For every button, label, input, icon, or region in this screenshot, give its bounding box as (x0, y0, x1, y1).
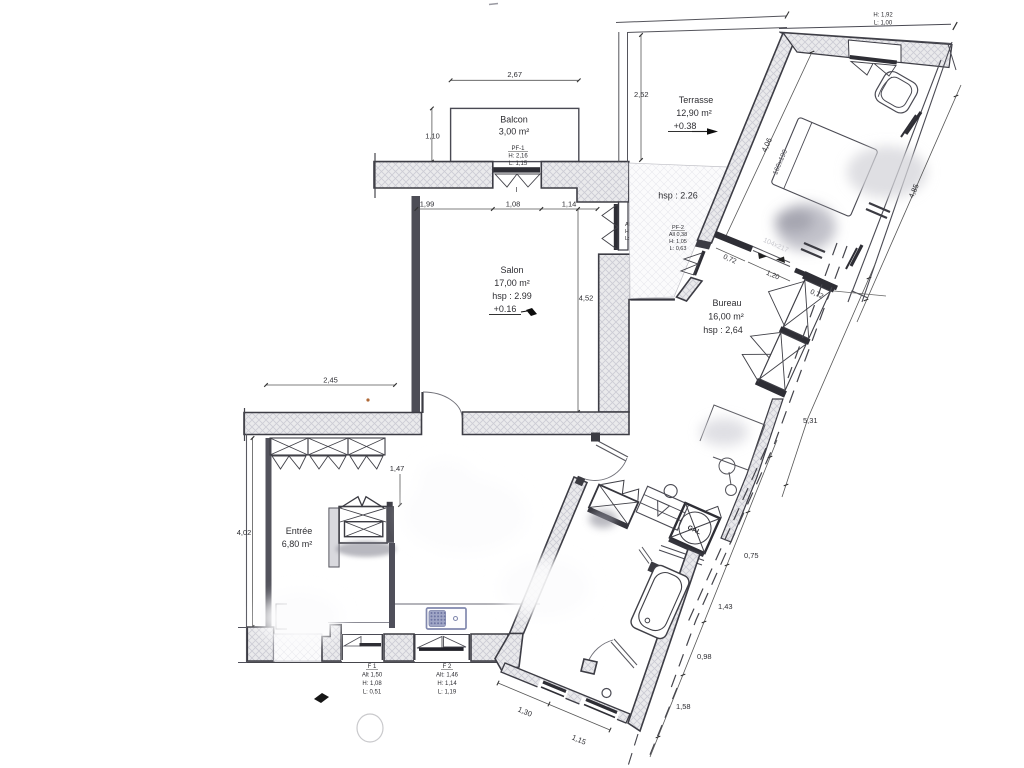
svg-text:0,98: 0,98 (697, 652, 712, 661)
svg-text:Alt 1,50: Alt 1,50 (362, 673, 383, 679)
svg-text:PF-2: PF-2 (672, 225, 684, 231)
svg-text:1,15: 1,15 (570, 733, 587, 747)
svg-text:4,02: 4,02 (237, 528, 252, 537)
svg-text:1,43: 1,43 (718, 602, 733, 611)
svg-text:+0.38: +0.38 (674, 121, 697, 131)
svg-text:H: 2,16: H: 2,16 (508, 154, 528, 160)
svg-text:0,75: 0,75 (744, 551, 759, 560)
svg-text:1,08: 1,08 (506, 200, 521, 209)
svg-text:5,31: 5,31 (803, 416, 818, 425)
svg-text:L: 0,51: L: 0,51 (363, 690, 382, 696)
svg-text:F 1: F 1 (368, 664, 377, 670)
svg-text:Alt: 1,46: Alt: 1,46 (436, 673, 459, 679)
svg-text:L: 1,15: L: 1,15 (509, 161, 528, 167)
svg-text:+0.16: +0.16 (494, 304, 517, 314)
svg-text:hsp : 2,64: hsp : 2,64 (703, 325, 743, 335)
svg-text:3,00 m²: 3,00 m² (499, 127, 530, 137)
svg-text:1,30: 1,30 (516, 705, 533, 719)
svg-text:4,52: 4,52 (579, 294, 594, 303)
svg-text:1,99: 1,99 (420, 200, 435, 209)
svg-text:PF-1: PF-1 (511, 146, 525, 152)
svg-text:17,00 m²: 17,00 m² (494, 278, 530, 288)
svg-text:Terrasse: Terrasse (679, 95, 714, 105)
svg-text:hsp : 2.99: hsp : 2.99 (492, 291, 532, 301)
svg-text:Balcon: Balcon (500, 115, 528, 125)
svg-text:0,72: 0,72 (809, 289, 824, 301)
svg-text:Bureau: Bureau (712, 298, 741, 308)
svg-text:16,00 m²: 16,00 m² (708, 312, 744, 322)
svg-text:H: 1,14: H: 1,14 (437, 681, 457, 687)
svg-text:Salon: Salon (500, 265, 523, 275)
svg-text:160x190: 160x190 (772, 149, 789, 177)
svg-text:H: 1,08: H: 1,08 (362, 681, 382, 687)
svg-text:L: 0,63: L: 0,63 (670, 246, 687, 252)
svg-text:H: 1,92: H: 1,92 (873, 13, 893, 19)
svg-text:2,67: 2,67 (507, 70, 522, 79)
svg-text:12,90 m²: 12,90 m² (676, 108, 712, 118)
svg-text:F 2: F 2 (443, 664, 452, 670)
svg-text:1,14: 1,14 (562, 200, 577, 209)
svg-text:1,10: 1,10 (425, 132, 440, 141)
svg-text:0,72: 0,72 (722, 254, 737, 266)
svg-text:hsp : 2.26: hsp : 2.26 (658, 191, 698, 201)
svg-text:6,80 m²: 6,80 m² (282, 539, 313, 549)
svg-text:1,47: 1,47 (390, 464, 405, 473)
svg-text:L: 1,00: L: 1,00 (874, 21, 893, 27)
svg-text:Entrée: Entrée (286, 526, 313, 536)
svg-text:1,20: 1,20 (765, 270, 780, 282)
svg-text:2,52: 2,52 (634, 90, 649, 99)
svg-text:H: 1,05: H: 1,05 (669, 239, 687, 245)
svg-text:1,58: 1,58 (676, 702, 691, 711)
svg-text:L: 1,19: L: 1,19 (438, 690, 457, 696)
svg-text:2,45: 2,45 (323, 376, 338, 385)
svg-text:All 0,38: All 0,38 (669, 232, 687, 238)
